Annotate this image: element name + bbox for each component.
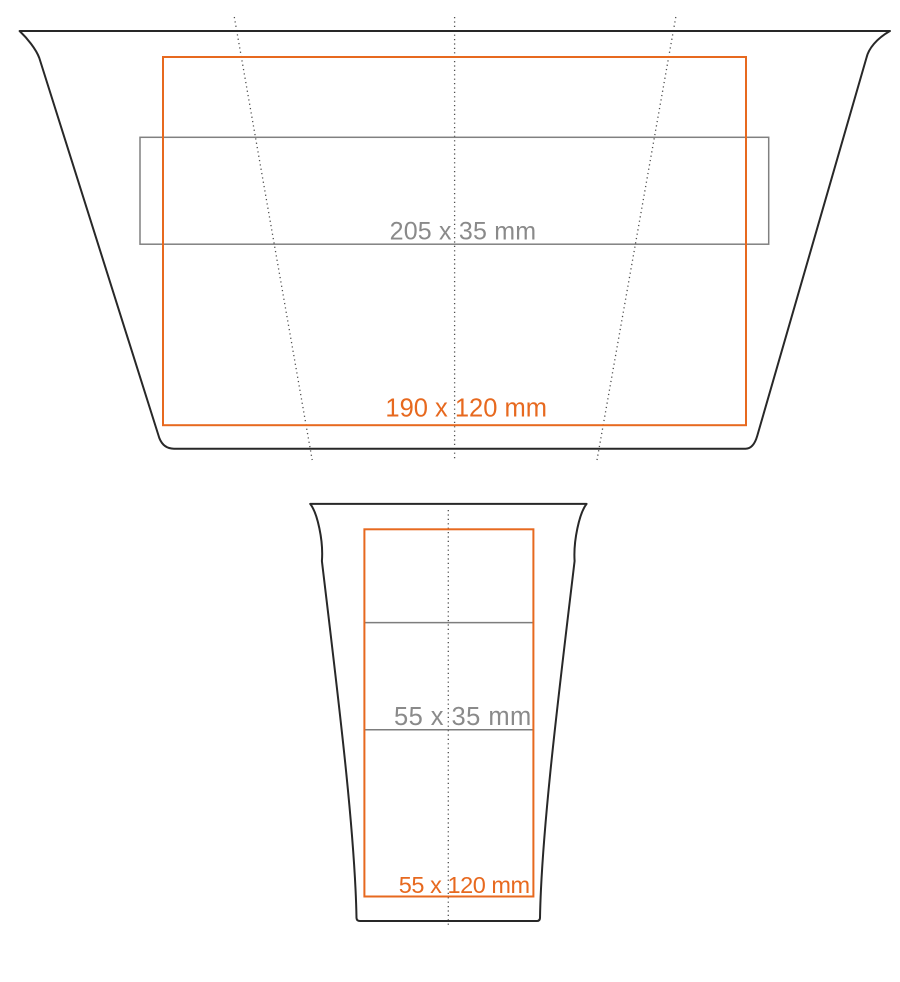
svg-text:55 x 120 mm: 55 x 120 mm — [399, 872, 530, 898]
svg-text:55 x 35 mm: 55 x 35 mm — [394, 703, 532, 731]
svg-text:205 x 35 mm: 205 x 35 mm — [390, 218, 537, 246]
svg-text:190 x 120 mm: 190 x 120 mm — [385, 395, 547, 423]
